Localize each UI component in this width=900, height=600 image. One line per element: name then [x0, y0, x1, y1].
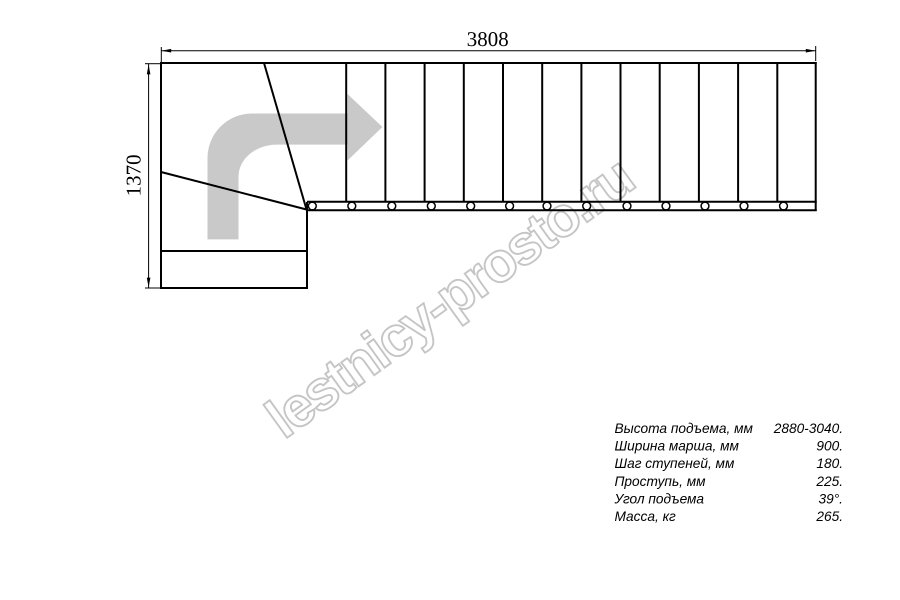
- svg-text:39°.: 39°.: [818, 491, 843, 506]
- svg-text:225.: 225.: [815, 474, 843, 489]
- svg-text:Высота подъема, мм: Высота подъема, мм: [615, 421, 754, 436]
- svg-text:265.: 265.: [815, 509, 843, 524]
- svg-text:Ширина марша, мм: Ширина марша, мм: [615, 439, 740, 454]
- svg-text:Угол подъема: Угол подъема: [614, 491, 705, 506]
- svg-text:Шаг ступеней, мм: Шаг ступеней, мм: [615, 456, 735, 471]
- svg-text:2880-3040.: 2880-3040.: [773, 421, 843, 436]
- svg-text:180.: 180.: [816, 456, 843, 471]
- svg-text:Масса, кг: Масса, кг: [615, 509, 677, 524]
- svg-text:900.: 900.: [816, 439, 843, 454]
- svg-text:Проступь, мм: Проступь, мм: [615, 474, 707, 489]
